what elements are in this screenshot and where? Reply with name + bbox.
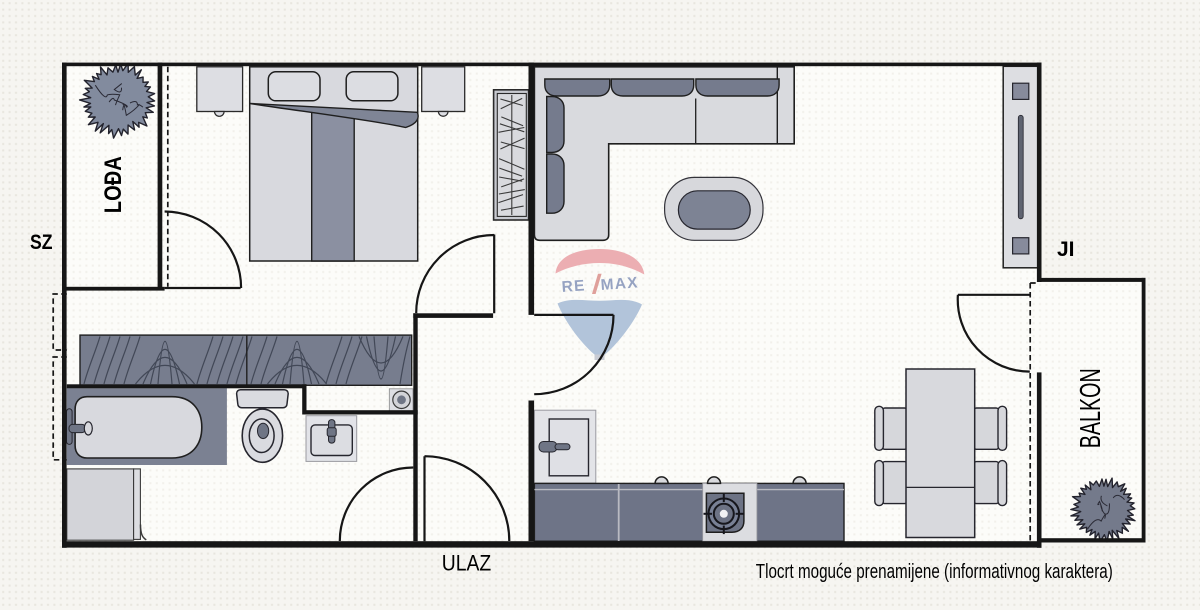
- svg-text:RE: RE: [561, 277, 586, 296]
- svg-text:Tlocrt moguće prenamijene (inf: Tlocrt moguće prenamijene (informativnog…: [756, 560, 1113, 583]
- svg-text:MAX: MAX: [600, 274, 639, 294]
- svg-text:ULAZ: ULAZ: [442, 551, 492, 576]
- svg-text:LOĐA: LOĐA: [100, 156, 127, 213]
- svg-text:BALKON: BALKON: [1075, 368, 1107, 448]
- svg-text:SZ: SZ: [30, 231, 53, 254]
- svg-text:JI: JI: [1057, 238, 1075, 261]
